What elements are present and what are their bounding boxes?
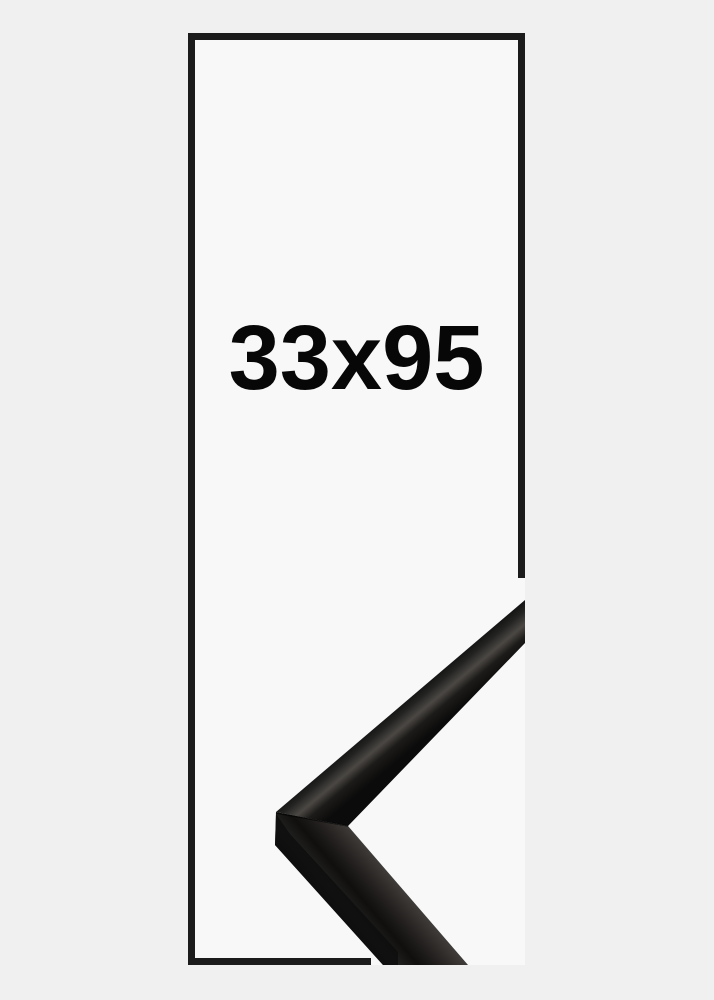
corner-sample-upper-bar xyxy=(276,600,525,826)
frame-corner-sample-photo xyxy=(0,0,714,1000)
product-image: 33x95 xyxy=(0,0,714,1000)
